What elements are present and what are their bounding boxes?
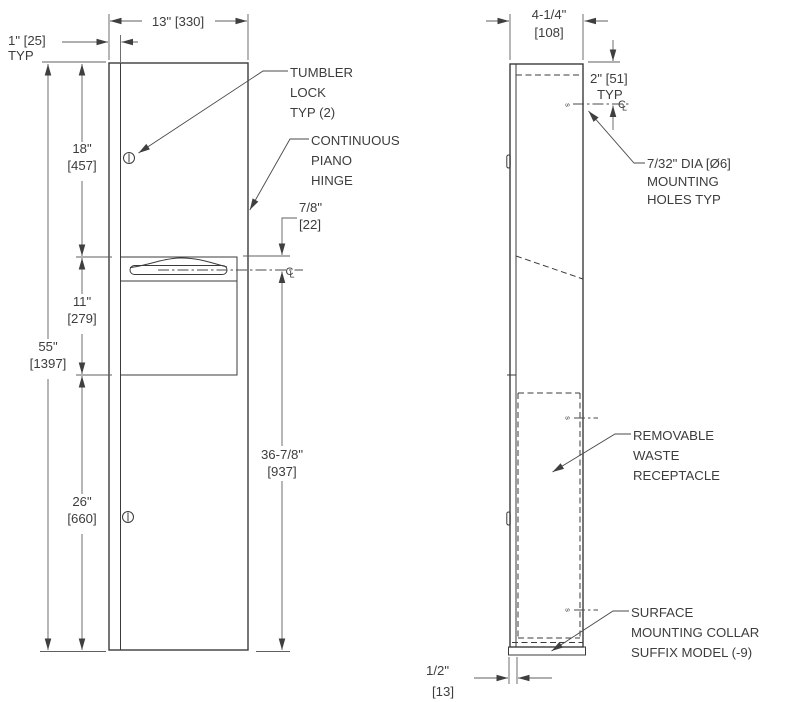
mounting-hole-mark-3: s bbox=[564, 608, 573, 612]
tumbler-lock-bottom-icon bbox=[123, 512, 134, 523]
mounting-collar bbox=[509, 647, 586, 655]
hole-centerline-symbol: C L bbox=[618, 99, 627, 113]
dim-mid-in: 11" bbox=[73, 294, 92, 309]
dim-waste-mm: [937] bbox=[267, 464, 296, 479]
tumbler-lock-leader bbox=[139, 71, 289, 153]
dim-depth-in: 4-1/4" bbox=[532, 7, 567, 22]
piano-hinge-label-2: PIANO bbox=[311, 153, 352, 168]
towel-sheet-curve bbox=[130, 258, 227, 268]
waste-receptacle-label-1: REMOVABLE bbox=[633, 428, 714, 443]
dim-depth-mm: [108] bbox=[534, 25, 563, 40]
tumbler-lock-label-1: TUMBLER bbox=[290, 65, 353, 80]
tumbler-lock-label-3: TYP (2) bbox=[290, 105, 335, 120]
dim-width: 13" [330] bbox=[152, 14, 204, 29]
dim-slot-mm: [22] bbox=[299, 217, 321, 232]
waste-receptacle-label-2: WASTE bbox=[633, 448, 680, 463]
cabinet-body-front bbox=[109, 63, 248, 650]
dim-lower-in: 26" bbox=[72, 494, 92, 509]
mounting-holes-label-3: HOLES TYP bbox=[647, 192, 721, 207]
dim-flange-typ: TYP bbox=[8, 48, 34, 63]
side-view-dimensions: 4-1/4" [108] 2" [51] TYP C L 1/2" [13] bbox=[426, 7, 628, 699]
hidden-towel-tray-slope bbox=[516, 256, 583, 279]
dim-lower-mm: [660] bbox=[67, 511, 96, 526]
centerline-l: L bbox=[290, 270, 295, 280]
dim-total-mm: [1397] bbox=[30, 356, 67, 371]
front-view-dimensions: 13" [330] 1" [25] TYP 18" [457] 11" [279… bbox=[8, 14, 322, 652]
centerline-l: L bbox=[622, 103, 627, 113]
mounting-hole-mark-2: s bbox=[564, 416, 573, 420]
waste-receptacle-hidden-outline bbox=[512, 393, 583, 643]
front-view: C L bbox=[109, 63, 303, 650]
tumbler-lock-top-icon bbox=[124, 153, 135, 164]
mounting-holes-label-2: MOUNTING bbox=[647, 174, 719, 189]
dim-upper-in: 18" bbox=[72, 141, 92, 156]
dispenser-drawing-svg: C L 13" [330] 1" [25] TYP 18" [457] 11" … bbox=[0, 0, 793, 702]
mounting-collar-label-3: SUFFIX MODEL (-9) bbox=[631, 645, 752, 660]
dim-flange: 1" [25] bbox=[8, 33, 46, 48]
mounting-collar-label-1: SURFACE bbox=[631, 605, 693, 620]
front-view-callouts: TUMBLER LOCK TYP (2) CONTINUOUS PIANO HI… bbox=[139, 65, 400, 210]
side-view: s s s bbox=[507, 64, 631, 655]
dim-mid-mm: [279] bbox=[67, 311, 96, 326]
mounting-collar-leader bbox=[552, 611, 630, 651]
dim-total-in: 55" bbox=[38, 339, 58, 354]
dim-hole-offset: 2" [51] bbox=[590, 71, 628, 86]
technical-drawing-canvas: C L 13" [330] 1" [25] TYP 18" [457] 11" … bbox=[0, 0, 793, 702]
dim-waste-in: 36-7/8" bbox=[261, 447, 303, 462]
mounting-collar-label-2: MOUNTING COLLAR bbox=[631, 625, 759, 640]
cabinet-body-side bbox=[510, 64, 583, 647]
mounting-hole-marks: s s s bbox=[564, 103, 632, 612]
dim-upper-mm: [457] bbox=[67, 158, 96, 173]
dim-slot-in: 7/8" bbox=[299, 200, 322, 215]
waste-receptacle-leader bbox=[553, 434, 632, 472]
mounting-hole-mark-1: s bbox=[564, 103, 573, 107]
dim-collar-mm: [13] bbox=[432, 684, 454, 699]
piano-hinge-label-1: CONTINUOUS bbox=[311, 133, 400, 148]
dim-collar-in: 1/2" bbox=[426, 663, 449, 678]
mounting-holes-leader bbox=[589, 111, 646, 163]
mounting-holes-label-1: 7/32" DIA [Ø6] bbox=[647, 156, 731, 171]
slot-centerline-symbol: C L bbox=[286, 266, 295, 280]
tumbler-lock-label-2: LOCK bbox=[290, 85, 326, 100]
piano-hinge-label-3: HINGE bbox=[311, 173, 353, 188]
waste-receptacle-label-3: RECEPTACLE bbox=[633, 468, 720, 483]
